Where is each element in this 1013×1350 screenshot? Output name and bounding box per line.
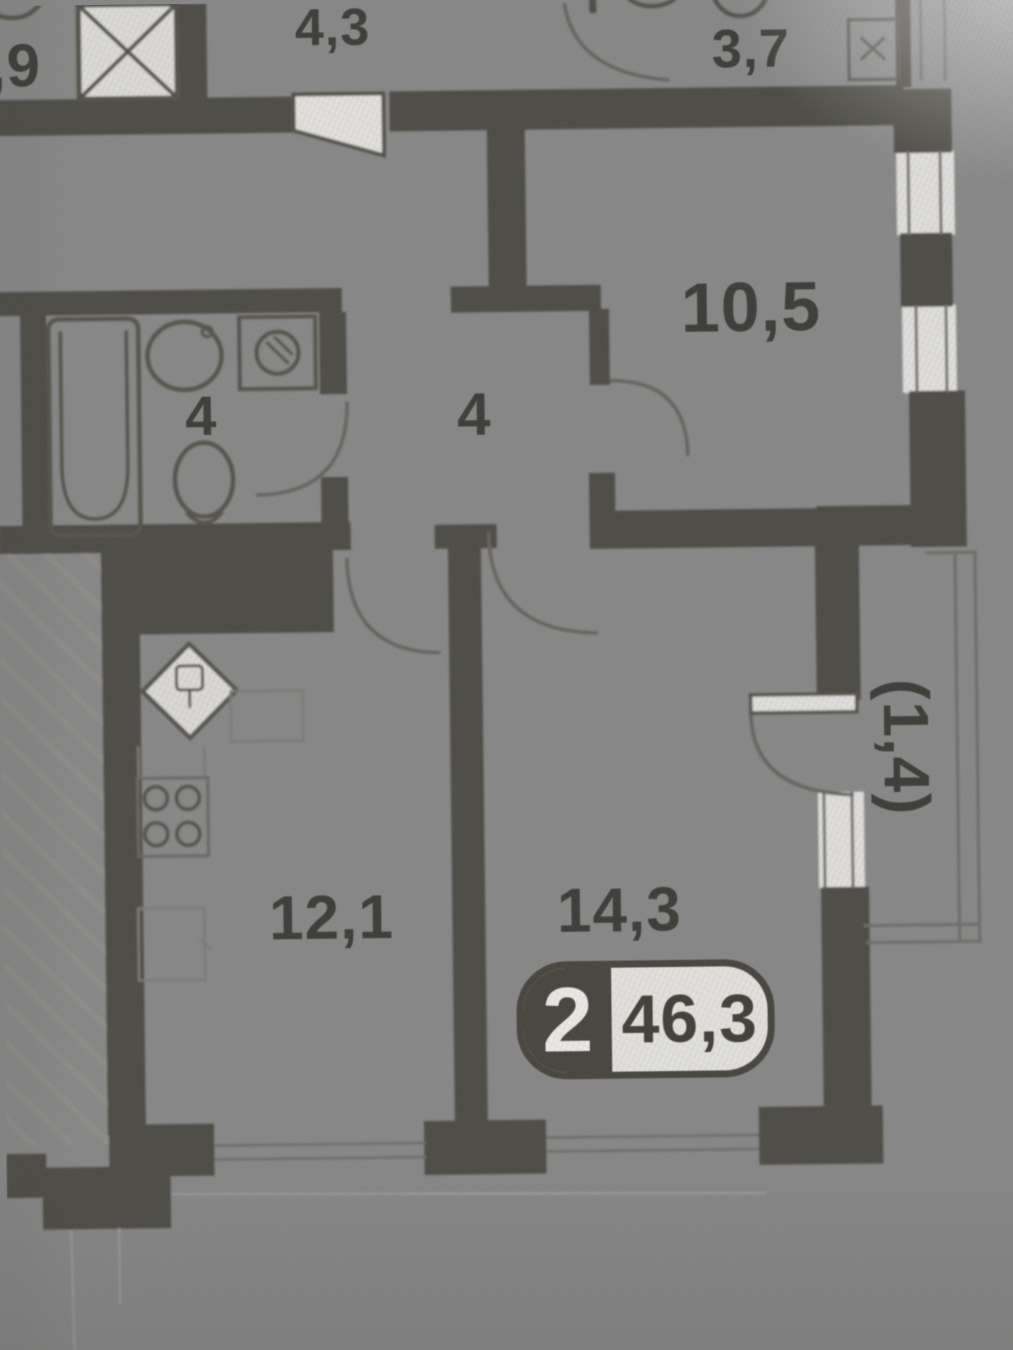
bathtub-icon — [48, 318, 141, 535]
washing-machine-icon — [239, 316, 316, 389]
stove-icon — [138, 778, 209, 857]
unit-info-badge: 2 46,3 — [516, 959, 775, 1080]
floor-plan-photo: ,9 4,3 3,7 10,5 4 4 12,1 14,3 (1,4) 2 46… — [0, 0, 1013, 1350]
balcony-door-leaf — [751, 694, 857, 713]
entry-door-leaf — [293, 93, 384, 156]
hatched-adjacent-area — [0, 553, 109, 1146]
paper-creases — [71, 1187, 769, 1350]
area-label-bedroom: 10,5 — [680, 266, 821, 348]
walls — [0, 0, 975, 1230]
rooms-count-badge: 2 — [523, 968, 612, 1073]
floor-plan-svg — [0, 0, 1013, 1350]
kitchen-sink-icon — [142, 643, 237, 738]
area-label-living: 14,3 — [557, 874, 683, 947]
area-label-kitchen: 12,1 — [269, 882, 395, 955]
plan-rotated-layer: ,9 4,3 3,7 10,5 4 4 12,1 14,3 (1,4) 2 46… — [0, 0, 1013, 1350]
door-arc-bedroom — [610, 380, 688, 457]
area-label-bathroom: 4 — [185, 383, 218, 448]
toilet-partial-top-icon — [622, 0, 683, 7]
washer-box-icon — [848, 19, 899, 80]
counter-icon — [231, 690, 304, 741]
toilet-partial-top-left-icon — [0, 0, 44, 18]
area-label-hall: 4,3 — [294, 0, 370, 59]
door-arc-balcony — [751, 712, 854, 796]
area-label-wc-top: 3,7 — [711, 17, 790, 80]
washbasin-partial-top-icon — [713, 0, 768, 16]
door-arc-living — [489, 531, 598, 634]
shaft-x-icon — [78, 4, 177, 99]
fridge-icon — [138, 908, 212, 981]
window-wc-top — [920, 0, 945, 81]
washbasin-icon — [147, 321, 222, 390]
door-arc-kitchen — [347, 557, 440, 654]
area-label-balcony: (1,4) — [869, 678, 945, 815]
rooms-count: 2 — [541, 974, 593, 1067]
door-arc-wc-top — [564, 2, 669, 81]
area-label-partial-top-left: ,9 — [0, 31, 41, 101]
total-area-badge: 46,3 — [611, 966, 768, 1072]
total-area: 46,3 — [621, 984, 758, 1054]
window-kitchen-bottom — [214, 1143, 426, 1160]
toilet-icon — [175, 442, 234, 523]
counter-edge-lines — [138, 746, 204, 779]
window-living-bottom — [546, 1135, 759, 1152]
area-label-corridor: 4 — [457, 380, 492, 449]
